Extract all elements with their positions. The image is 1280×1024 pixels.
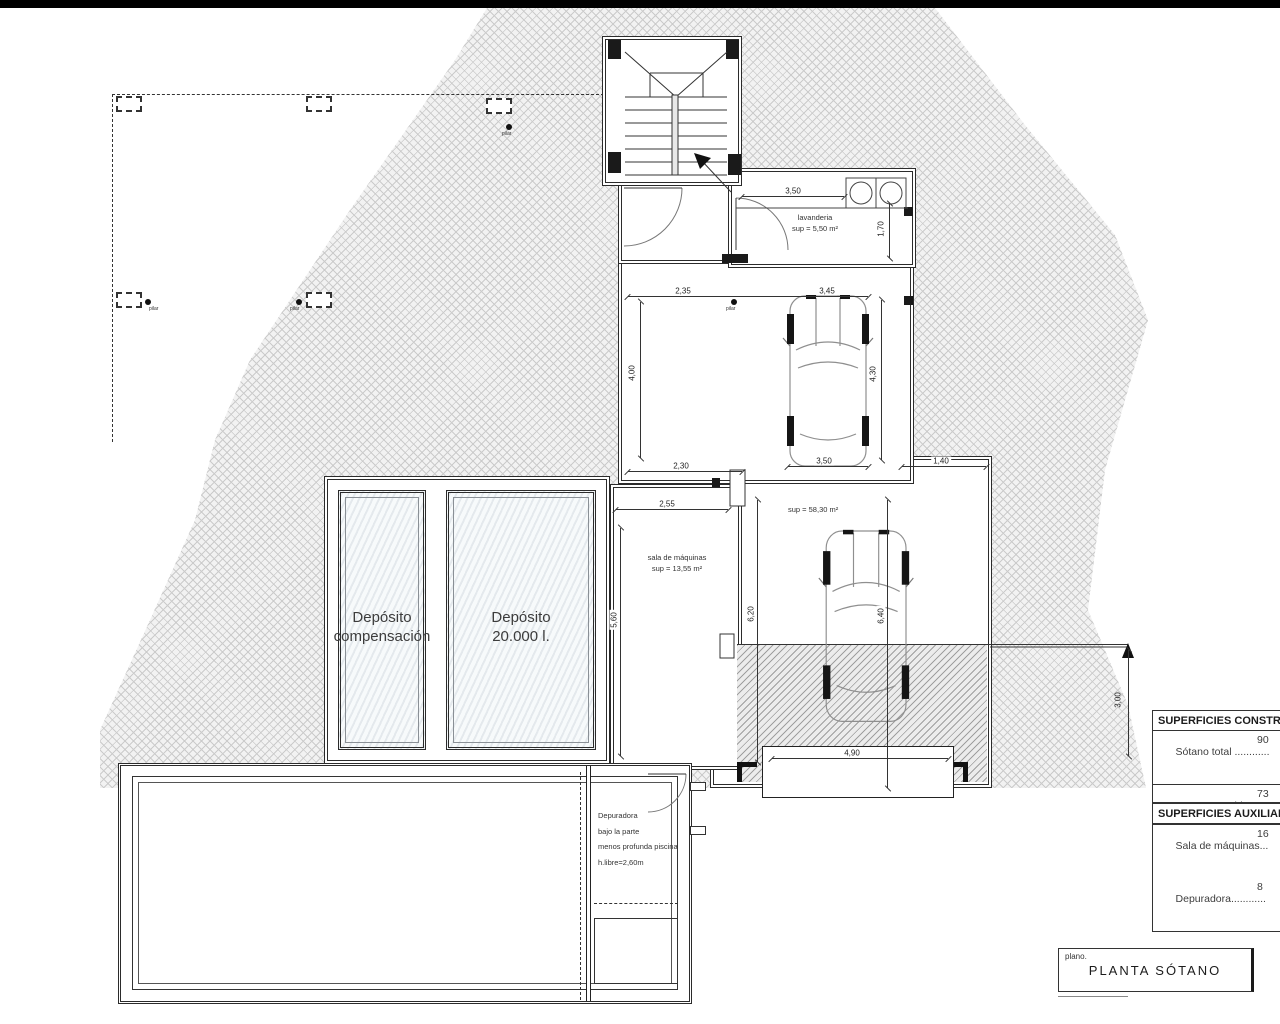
row-label: Sótano total ............ <box>1176 746 1270 758</box>
table-header: SUPERFICIES AUXILIAR <box>1153 804 1280 825</box>
row-value: 90 <box>1257 734 1269 746</box>
table-row: Sala de máquinas... 16 <box>1153 825 1280 878</box>
dimension-label: 6,20 <box>747 604 756 624</box>
table-row: Sótano total ............ 90 <box>1153 731 1280 785</box>
dimension-label: 2,30 <box>671 462 691 471</box>
dimension-label: 1,70 <box>877 219 886 239</box>
floor-plan-sheet: pilar pilar pilar Depuradora bajo la par… <box>0 0 1280 1024</box>
dimension-laundry-height <box>889 204 890 258</box>
dimension-label: 3,45 <box>817 287 837 296</box>
row-value: 8 <box>1257 881 1263 893</box>
row-label: Sala de máquinas... <box>1176 840 1269 852</box>
dimension-label: 4,90 <box>842 749 862 758</box>
dimension-laundry-width <box>742 196 844 197</box>
table-superficies-auxiliares: SUPERFICIES AUXILIAR Sala de máquinas...… <box>1152 802 1280 932</box>
title-block: plano. PLANTA SÓTANO <box>1058 948 1254 992</box>
table-row: Depuradora............ 8 <box>1153 878 1280 931</box>
dimension-hall-height <box>640 302 641 458</box>
plan-linework <box>0 0 1280 1024</box>
dimension-extension-width <box>902 466 986 467</box>
title-block-next-row-edge <box>1058 996 1128 997</box>
dimension-machine-width <box>616 509 728 510</box>
dimension-right-offset <box>1128 650 1129 756</box>
table-header: SUPERFICIES CONSTRU <box>1153 711 1280 731</box>
dimension-label: 3,50 <box>814 457 834 466</box>
dimension-label: 1,40 <box>931 457 951 466</box>
row-label: Depuradora............ <box>1176 893 1266 905</box>
dimension-label: 4,30 <box>869 364 878 384</box>
dimension-garage-lower-height <box>757 500 758 762</box>
dimension-label: 3,50 <box>783 187 803 196</box>
sheet-title: PLANTA SÓTANO <box>1059 963 1251 978</box>
dimension-label: 2,35 <box>673 287 693 296</box>
row-value: 16 <box>1257 828 1269 840</box>
dimension-garage-bay-height <box>881 300 882 460</box>
dimension-label: 2,55 <box>657 500 677 509</box>
title-block-tag: plano. <box>1065 952 1087 961</box>
dimension-label: 4,00 <box>628 363 637 383</box>
row-value: 73 <box>1257 788 1269 800</box>
dimension-label: 3,00 <box>1114 690 1123 710</box>
dimension-ramp-width <box>772 758 948 759</box>
dimension-label: 6,40 <box>877 606 886 626</box>
pilar-label: pilar <box>726 307 735 312</box>
dimension-label: 5,60 <box>610 610 619 630</box>
dimension-hall-width <box>628 296 868 297</box>
dimension-hall-bottom-width <box>628 471 742 472</box>
dimension-garage-width <box>788 466 868 467</box>
dimension-machine-height <box>620 528 621 756</box>
pilar-dot <box>731 299 737 305</box>
dimension-ramp-height <box>887 500 888 788</box>
